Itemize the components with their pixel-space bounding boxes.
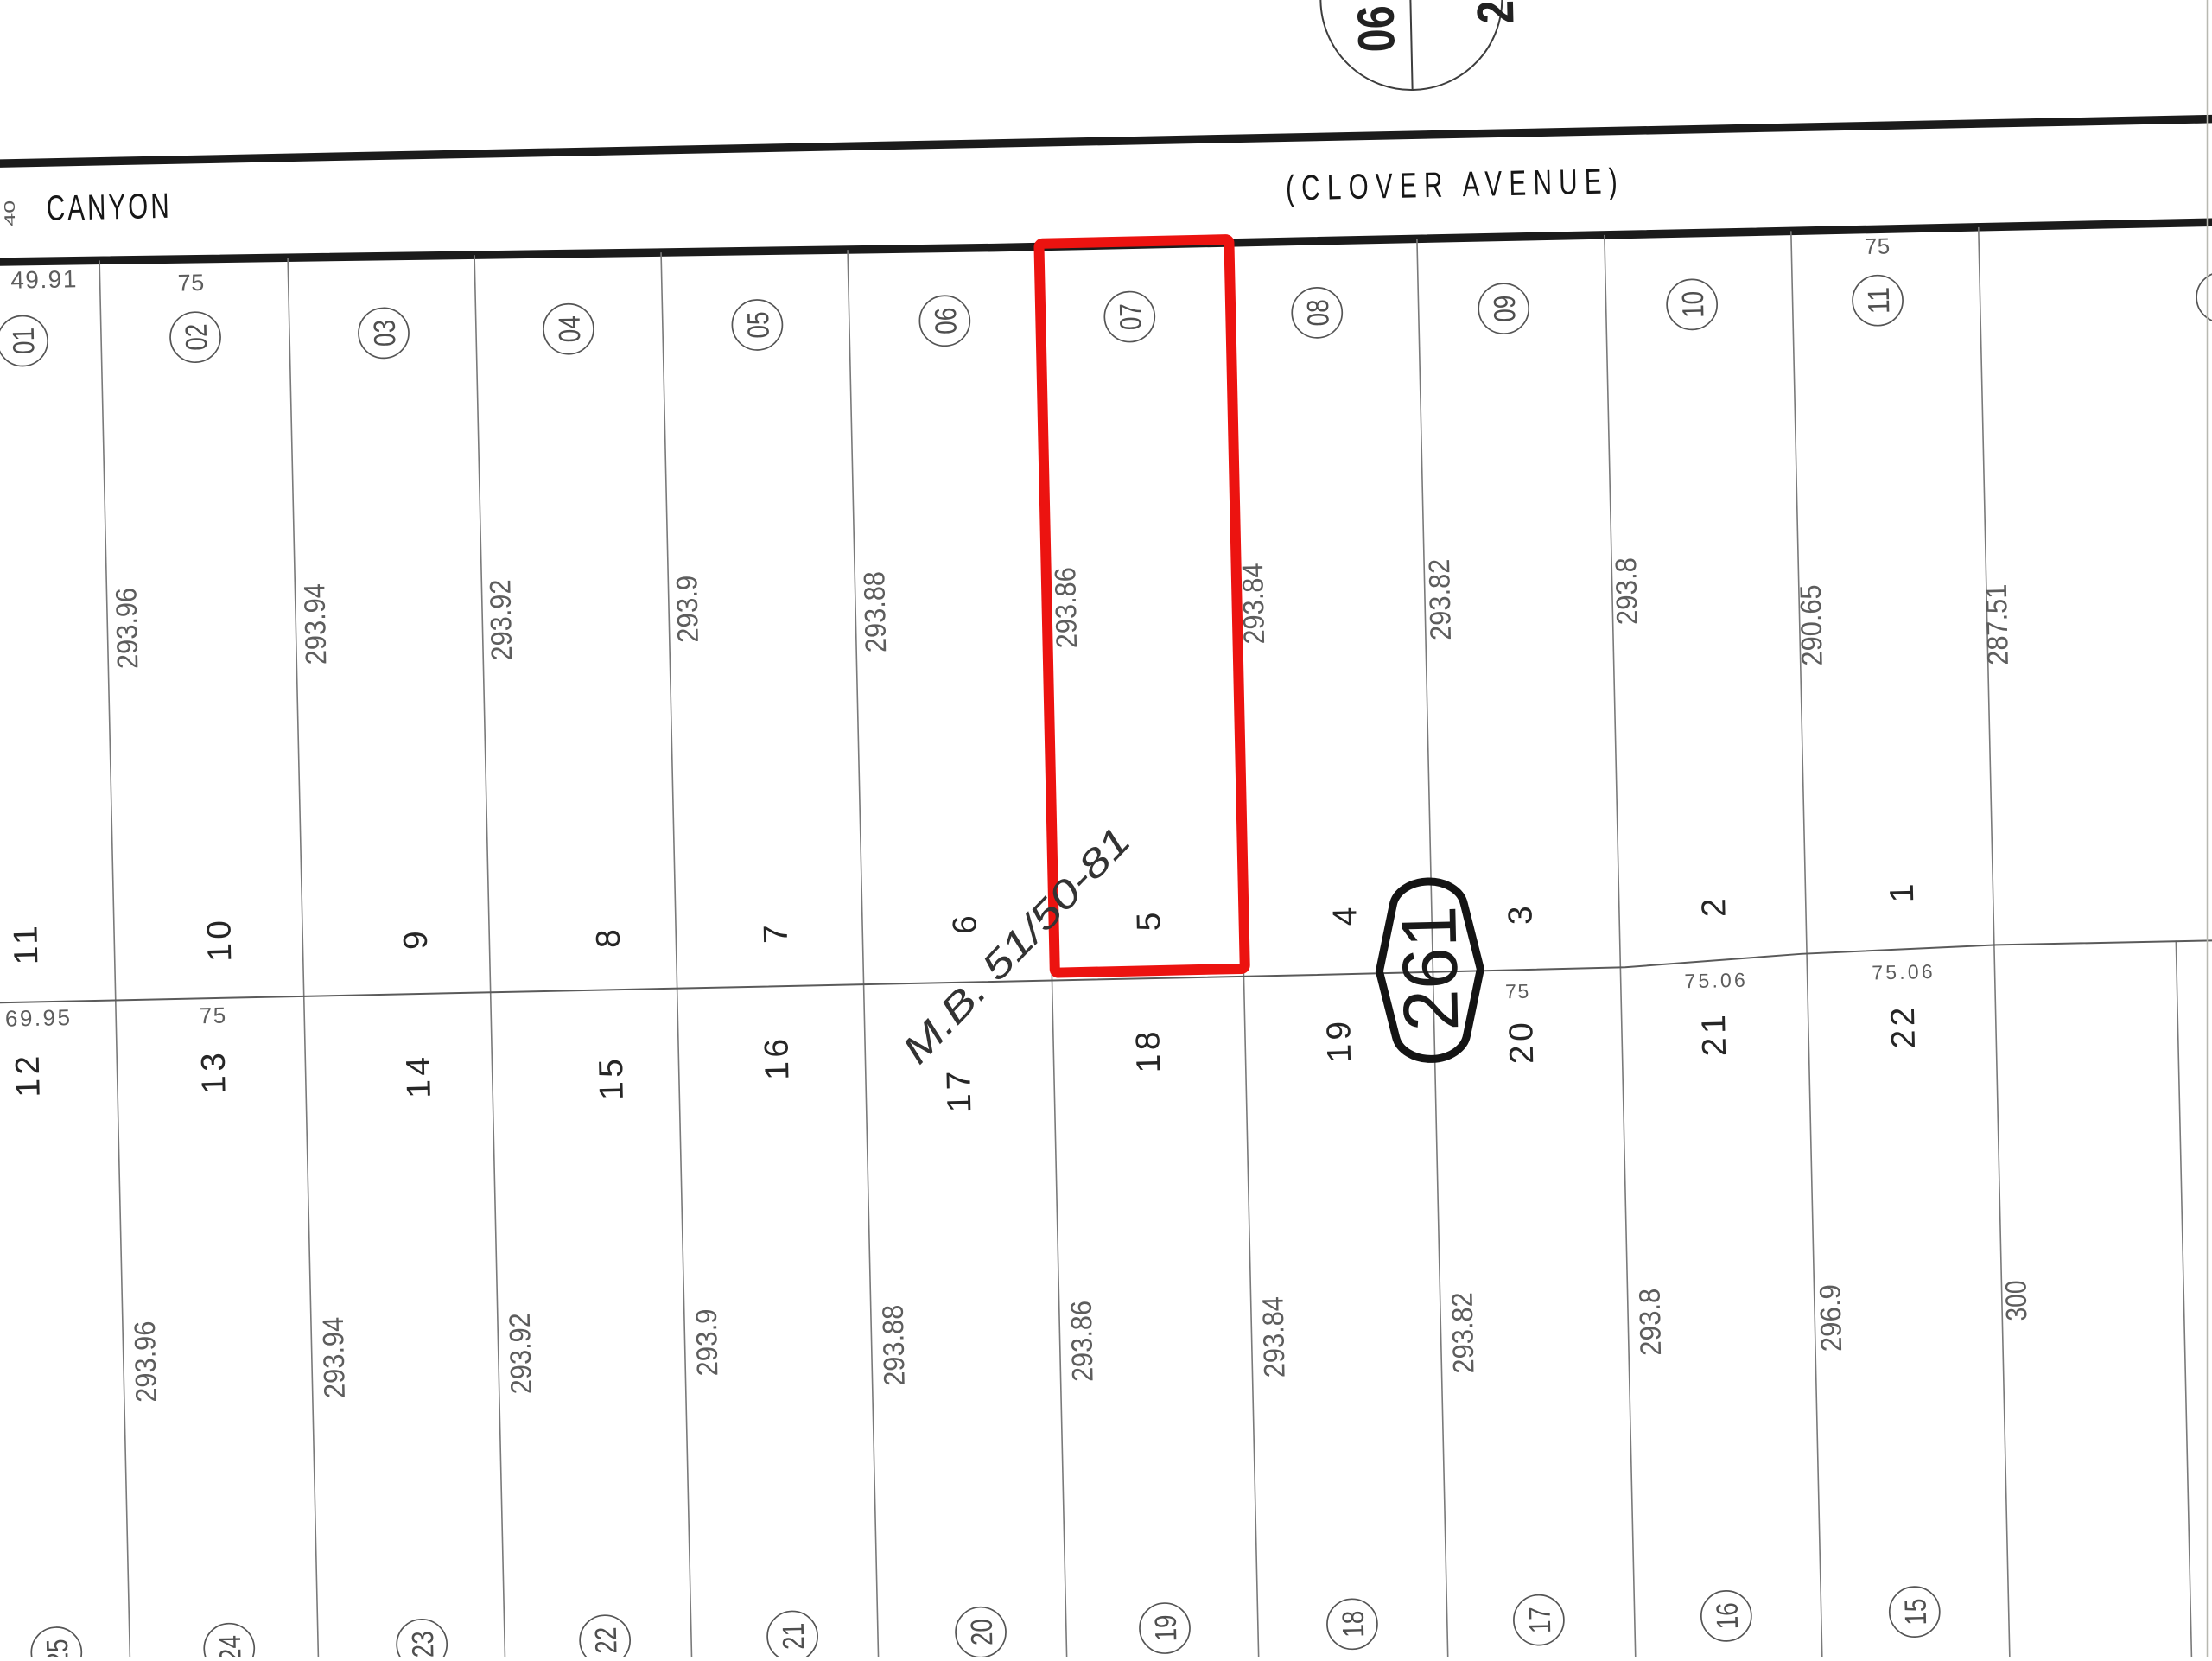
svg-text:21: 21 [1695,1010,1733,1056]
svg-text:11: 11 [7,921,45,964]
svg-text:09: 09 [1488,295,1522,322]
svg-text:11: 11 [1862,287,1897,315]
svg-text:293.9: 293.9 [690,1308,725,1377]
svg-text:15: 15 [593,1054,631,1100]
svg-text:22: 22 [589,1626,624,1654]
svg-text:4: 4 [1326,903,1364,926]
svg-text:2: 2 [1695,894,1733,917]
svg-text:6: 6 [946,911,984,934]
svg-text:25: 25 [41,1639,75,1657]
svg-text:17: 17 [1523,1607,1558,1634]
svg-text:293.8: 293.8 [1633,1288,1668,1356]
svg-text:290.65: 290.65 [1795,584,1829,666]
svg-text:06: 06 [929,307,963,334]
svg-text:15: 15 [1898,1598,1933,1626]
svg-text:293.88: 293.88 [877,1304,912,1386]
svg-text:75: 75 [177,270,205,296]
svg-text:293.92: 293.92 [504,1313,538,1395]
svg-text:293.94: 293.94 [298,583,333,665]
svg-text:18: 18 [1129,1028,1167,1073]
svg-text:287.51: 287.51 [1980,583,2015,665]
svg-text:75: 75 [1864,232,1891,259]
svg-text:14: 14 [400,1053,438,1098]
svg-text:CANYON: CANYON [46,186,172,228]
svg-text:18: 18 [1337,1610,1371,1638]
svg-text:02: 02 [180,323,214,351]
svg-text:04: 04 [553,315,588,343]
svg-text:7: 7 [757,920,795,944]
svg-text:75: 75 [199,1002,227,1029]
svg-text:293.92: 293.92 [484,579,518,661]
svg-text:19: 19 [1149,1614,1184,1642]
svg-text:261: 261 [1386,905,1475,1032]
svg-text:40: 40 [2,200,19,226]
svg-text:293.8: 293.8 [1610,557,1644,626]
svg-text:293.82: 293.82 [1423,558,1458,640]
svg-text:05: 05 [741,311,776,339]
svg-text:10: 10 [200,916,238,962]
svg-text:296.9: 296.9 [1814,1284,1848,1352]
svg-text:3: 3 [1502,901,1540,925]
svg-text:293.86: 293.86 [1065,1301,1100,1383]
svg-text:20: 20 [965,1619,1000,1646]
svg-text:(CLOVER AVENUE): (CLOVER AVENUE) [1286,161,1625,207]
svg-text:293.84: 293.84 [1257,1296,1292,1378]
svg-text:12: 12 [10,1052,48,1098]
svg-text:20: 20 [1503,1018,1541,1064]
svg-text:293.94: 293.94 [317,1317,352,1399]
svg-text:21: 21 [777,1623,811,1651]
svg-text:17: 17 [940,1066,978,1112]
svg-text:24: 24 [213,1635,248,1657]
svg-text:293.86: 293.86 [1049,567,1084,649]
svg-text:69.95: 69.95 [5,1004,73,1032]
svg-text:75: 75 [1505,980,1530,1003]
svg-text:293.84: 293.84 [1236,563,1271,645]
svg-text:10: 10 [1676,290,1711,318]
svg-text:8: 8 [590,925,628,948]
svg-text:293.82: 293.82 [1446,1292,1481,1374]
svg-text:13: 13 [195,1048,233,1094]
svg-text:49.91: 49.91 [10,265,78,294]
svg-text:1: 1 [1884,880,1922,903]
svg-text:300: 300 [1999,1280,2033,1321]
svg-text:26: 26 [1465,0,1524,24]
svg-text:293.9: 293.9 [671,575,705,643]
svg-text:293.96: 293.96 [129,1321,163,1403]
svg-text:75.06: 75.06 [1872,960,1935,984]
svg-text:293.88: 293.88 [858,571,893,653]
svg-text:16: 16 [1711,1602,1745,1630]
svg-text:19: 19 [1320,1017,1358,1063]
svg-text:5: 5 [1130,908,1168,932]
svg-text:22: 22 [1885,1003,1923,1049]
svg-text:07: 07 [1114,303,1148,331]
svg-text:75.06: 75.06 [1684,969,1748,993]
svg-text:01: 01 [7,328,41,355]
svg-text:16: 16 [758,1034,796,1080]
svg-text:293.96: 293.96 [110,588,144,670]
svg-text:08: 08 [1301,299,1336,327]
svg-text:9: 9 [397,926,435,950]
svg-text:06: 06 [1347,5,1406,53]
svg-text:23: 23 [406,1631,441,1657]
svg-text:03: 03 [368,319,403,347]
